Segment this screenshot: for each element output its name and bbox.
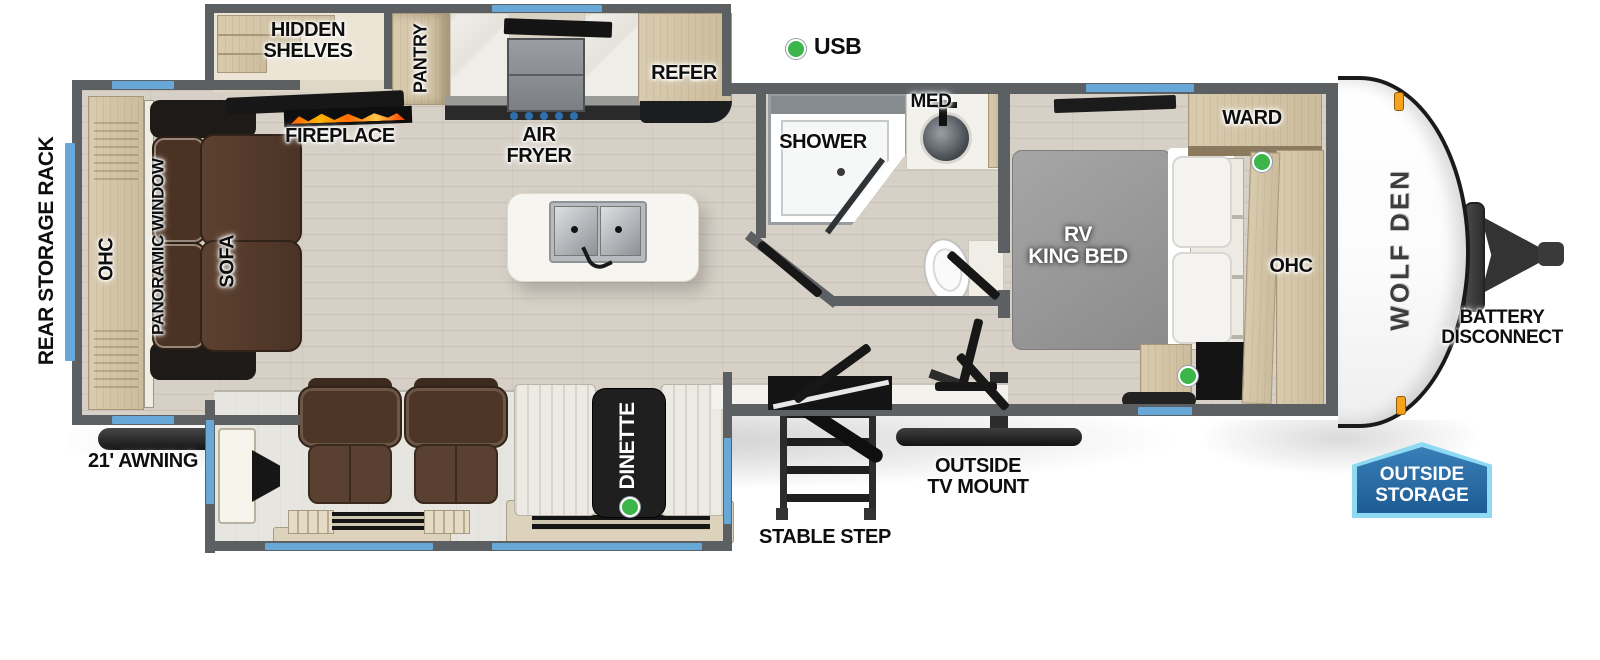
bedroom-ohc-cabinet (1276, 150, 1324, 408)
refrigerator (638, 13, 732, 103)
rear-ohc-louver-bottom (94, 326, 138, 388)
hitch-coupler (1538, 242, 1564, 266)
dinette-bench (514, 384, 596, 516)
kitchen-window-top (492, 5, 602, 12)
usb-dot-bedside (1178, 366, 1198, 386)
outside-tv-mount-label: OUTSIDE TV MOUNT (888, 456, 1068, 497)
theater-chair (298, 378, 402, 506)
hidden-shelves-label: HIDDEN SHELVES (218, 20, 398, 61)
king-bed-label: RV KING BED (998, 224, 1158, 267)
tv-mount-bar (896, 428, 1082, 446)
stable-step-label: STABLE STEP (735, 527, 915, 548)
chair-footrest-slats (424, 510, 470, 534)
pantry-label: PANTRY (412, 13, 431, 103)
usb-dot-dinette (620, 497, 640, 517)
step-foot (776, 508, 788, 520)
rear-storage-rack-bar (65, 143, 75, 361)
rv-floorplan: 21' AWNING REAR STORAGE RACK OHC PANORAM… (0, 0, 1600, 660)
clearance-light-top (1394, 92, 1404, 111)
shower-header (771, 96, 905, 114)
bedroom-ohc-label: OHC (1251, 256, 1331, 277)
dinette-label: DINETTE (617, 386, 639, 506)
refer-label: REFER (624, 63, 744, 84)
bed-pillow (1172, 252, 1232, 344)
bath-wall-bottom (830, 296, 1008, 306)
usb-legend-dot (786, 39, 806, 59)
bedroom-dresser (1196, 342, 1244, 400)
slide-end-window-blinds (218, 428, 256, 524)
step-foot (864, 508, 876, 520)
fireplace-label: FIREPLACE (250, 126, 430, 147)
sink-drain (615, 226, 622, 233)
hitch-a-frame (1481, 216, 1545, 294)
interior-tv-arm-horizontal (935, 382, 997, 391)
usb-legend-label: USB (814, 35, 904, 59)
range-drawer-line (509, 74, 583, 76)
sink-drain (571, 226, 578, 233)
rear-ohc-label: OHC (97, 224, 118, 294)
panoramic-window-label: PANORAMIC WINDOW (149, 137, 167, 357)
chair-footrest-stripes (332, 512, 424, 530)
rear-slide-wall-top (72, 80, 300, 90)
sofa-seat-cushion (200, 134, 302, 246)
shower-drain (837, 168, 845, 176)
range-knobs (510, 112, 586, 122)
dinette-window-bottom (265, 543, 433, 550)
med-label: MED (891, 92, 971, 112)
dinette-window-right (724, 438, 731, 524)
rear-slide-wall-bottom (72, 415, 300, 425)
rear-window-bottom (112, 416, 174, 424)
rear-ohc-louver-top (94, 118, 138, 180)
rear-storage-rack-label: REAR STORAGE RACK (36, 136, 58, 366)
kitchen-slide-wall-top (205, 4, 731, 13)
bedroom-window-top (1086, 84, 1194, 92)
sofa-seat-cushion (200, 240, 302, 352)
chair-footrest-slats (288, 510, 334, 534)
clearance-light-bottom (1396, 396, 1406, 415)
sofa-label: SOFA (218, 221, 239, 301)
bed-pillow (1172, 156, 1232, 248)
dinette-window-bottom2 (492, 543, 702, 550)
bath-wall-left (756, 88, 766, 238)
bedroom-window-bottom (1138, 407, 1192, 415)
ward-label: WARD (1192, 108, 1312, 129)
awning-label: 21' AWNING (63, 451, 223, 472)
battery-disconnect-label: BATTERY DISCONNECT (1412, 308, 1592, 347)
air-fryer-label: AIR FRYER (459, 125, 619, 166)
brand-logo: WOLF DEN (1387, 139, 1414, 359)
rear-window-top (112, 81, 174, 89)
outside-storage-label: OUTSIDE STORAGE (1375, 465, 1469, 507)
shower-label: SHOWER (753, 132, 893, 153)
refrigerator-base (640, 101, 732, 123)
main-wall-top (731, 83, 1338, 94)
kitchen-slide-wall-left (205, 4, 214, 90)
usb-dot-wardrobe (1252, 152, 1272, 172)
front-wall (1326, 83, 1338, 416)
theater-chair (404, 378, 508, 506)
